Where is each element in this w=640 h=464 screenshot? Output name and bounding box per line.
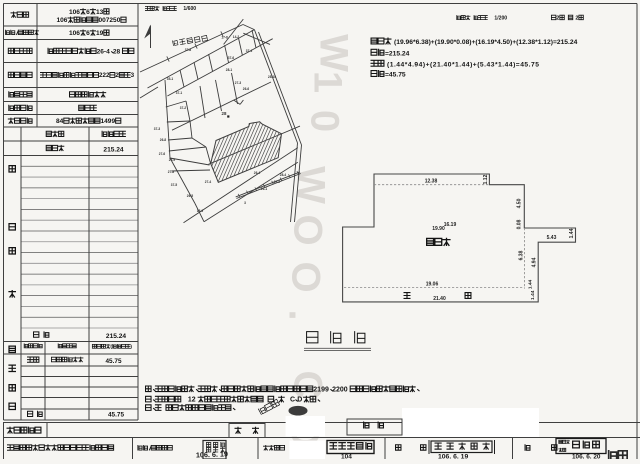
svg-text:104: 104 <box>341 454 352 460</box>
svg-text:45.75: 45.75 <box>106 358 122 365</box>
svg-text:215.24: 215.24 <box>106 333 127 340</box>
svg-text:12.38: 12.38 <box>425 179 438 185</box>
svg-text:(1.44*4.94)+(21.40*1.44)+(5.43: (1.44*4.94)+(21.40*1.44)+(5.43*1.44)=45.… <box>387 62 539 69</box>
svg-text:=45.75: =45.75 <box>385 72 406 79</box>
svg-text:3: 3 <box>131 72 135 79</box>
svg-text:222: 222 <box>99 72 110 79</box>
svg-text:D: D <box>297 397 302 404</box>
svg-text:26-1: 26-1 <box>261 187 268 191</box>
svg-text:215.24: 215.24 <box>103 147 124 154</box>
svg-text:106. 6. 20: 106. 6. 20 <box>572 454 601 460</box>
svg-text:1/600: 1/600 <box>183 6 196 12</box>
svg-text:27-8: 27-8 <box>168 170 175 174</box>
svg-text:W: W <box>311 34 355 72</box>
svg-text:3: 3 <box>244 201 246 205</box>
svg-text:17-8: 17-8 <box>221 36 228 40</box>
svg-text:21.40: 21.40 <box>433 296 446 302</box>
svg-text:1: 1 <box>305 71 349 93</box>
svg-text:18-6: 18-6 <box>197 209 204 213</box>
svg-text:1.44: 1.44 <box>569 228 575 238</box>
svg-text:28-1: 28-1 <box>226 68 233 72</box>
svg-text:106. 6. 19: 106. 6. 19 <box>196 449 228 459</box>
svg-text:C: C <box>290 397 295 404</box>
svg-text:C: C <box>285 371 329 400</box>
svg-text:6.38: 6.38 <box>518 250 524 260</box>
svg-text:2: 2 <box>115 72 119 79</box>
svg-text:19.06: 19.06 <box>426 282 439 288</box>
svg-text:26-6: 26-6 <box>243 87 250 91</box>
svg-text:=215.24: =215.24 <box>385 51 410 58</box>
svg-text:37-2: 37-2 <box>180 106 187 110</box>
svg-text:12: 12 <box>188 397 196 404</box>
svg-text:37-5: 37-5 <box>171 183 178 187</box>
svg-text:26-9: 26-9 <box>169 158 176 162</box>
svg-text:28-10: 28-10 <box>268 75 276 79</box>
svg-text:16.19: 16.19 <box>444 222 457 228</box>
svg-text:19: 19 <box>96 30 104 37</box>
svg-text:37-6: 37-6 <box>228 56 235 60</box>
svg-text:O: O <box>285 214 329 245</box>
svg-text:(19.96*6.38)+(19.90*0.08)+(16.: (19.96*6.38)+(19.90*0.08)+(16.19*4.50)+(… <box>394 39 578 46</box>
svg-text:4.50: 4.50 <box>516 198 522 208</box>
svg-text:106: 106 <box>69 30 80 37</box>
svg-text:37-1: 37-1 <box>176 91 183 95</box>
svg-text:5.43: 5.43 <box>547 235 557 241</box>
svg-text:1.12: 1.12 <box>483 174 489 184</box>
svg-text:13: 13 <box>96 9 104 16</box>
svg-text:1.44: 1.44 <box>530 290 536 300</box>
svg-text:19.90: 19.90 <box>432 226 445 232</box>
svg-text:26-8: 26-8 <box>160 138 167 142</box>
svg-text:84: 84 <box>56 118 64 125</box>
svg-text:1.44: 1.44 <box>528 280 534 290</box>
svg-text:26-4: 26-4 <box>254 171 261 175</box>
svg-text:1499: 1499 <box>101 118 116 125</box>
svg-text:O: O <box>283 261 327 292</box>
svg-text:0: 0 <box>302 110 346 132</box>
svg-text:28: 28 <box>113 48 121 55</box>
svg-text:106: 106 <box>57 17 68 24</box>
svg-text:14-2: 14-2 <box>233 35 240 39</box>
svg-text:27-6: 27-6 <box>159 152 166 156</box>
svg-text:1/200: 1/200 <box>494 15 507 21</box>
svg-text:2: 2 <box>575 15 578 21</box>
svg-text:26-5: 26-5 <box>187 194 194 198</box>
svg-text:37-4: 37-4 <box>246 49 253 53</box>
svg-text:106: 106 <box>69 9 80 16</box>
svg-text:2200: 2200 <box>332 386 348 393</box>
svg-text:28-4: 28-4 <box>280 173 287 177</box>
svg-text:28-2: 28-2 <box>274 180 281 184</box>
svg-text:27-4: 27-4 <box>205 180 212 184</box>
svg-text:2: 2 <box>556 15 559 21</box>
svg-text:37-3: 37-3 <box>154 127 161 131</box>
svg-text:0.08: 0.08 <box>516 219 522 229</box>
svg-text:26-4: 26-4 <box>97 48 110 55</box>
svg-text:28: 28 <box>222 111 227 116</box>
svg-text:27-3: 27-3 <box>235 81 242 85</box>
svg-text:35-1: 35-1 <box>167 77 174 81</box>
svg-text:4.94: 4.94 <box>531 257 537 267</box>
svg-text:007250: 007250 <box>98 17 120 24</box>
svg-text:6: 6 <box>86 9 90 16</box>
svg-text:45.75: 45.75 <box>108 412 124 419</box>
svg-text:2199: 2199 <box>313 386 329 393</box>
svg-text:6: 6 <box>86 30 90 37</box>
svg-text:.: . <box>280 309 324 320</box>
svg-text:106. 6. 19: 106. 6. 19 <box>438 454 468 460</box>
svg-text:37-8: 37-8 <box>185 48 192 52</box>
